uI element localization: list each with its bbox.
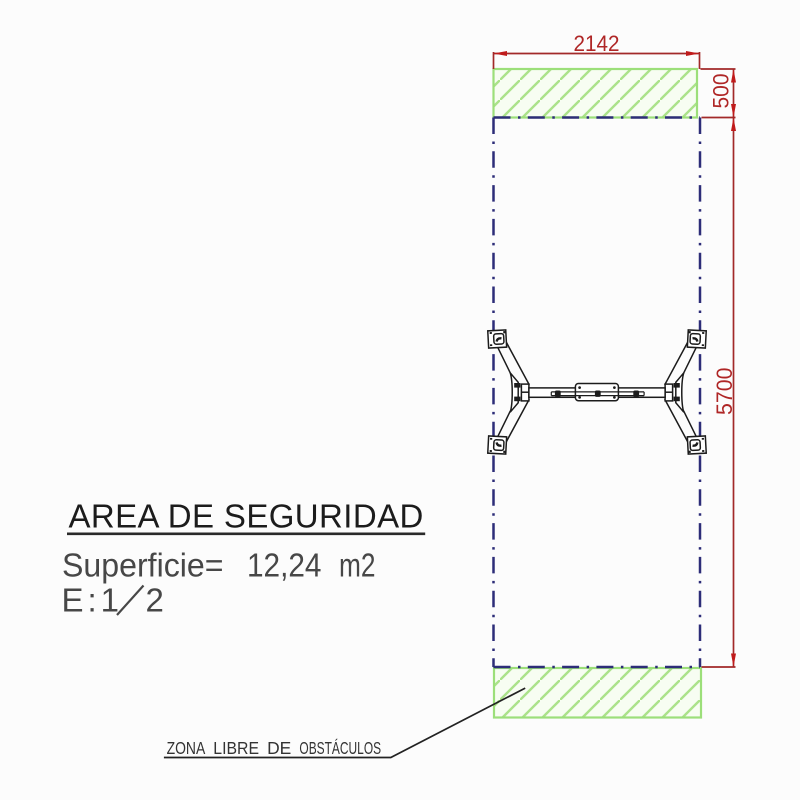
svg-text:2: 2 bbox=[146, 582, 164, 619]
svg-text:LIBRE: LIBRE bbox=[213, 738, 259, 758]
svg-text:500: 500 bbox=[709, 74, 734, 109]
svg-text:5700: 5700 bbox=[712, 368, 737, 416]
svg-text:OBSTÁCULOS: OBSTÁCULOS bbox=[299, 738, 381, 758]
svg-text:AREA DE SEGURIDAD: AREA DE SEGURIDAD bbox=[69, 498, 424, 535]
svg-text:m2: m2 bbox=[339, 547, 376, 584]
svg-text:E:1: E:1 bbox=[62, 582, 124, 619]
svg-text:DE: DE bbox=[267, 738, 291, 758]
svg-text:12,24: 12,24 bbox=[247, 547, 322, 584]
svg-text:2142: 2142 bbox=[574, 31, 620, 56]
svg-text:ZONA: ZONA bbox=[167, 738, 206, 758]
svg-text:Superficie=: Superficie= bbox=[62, 547, 224, 584]
